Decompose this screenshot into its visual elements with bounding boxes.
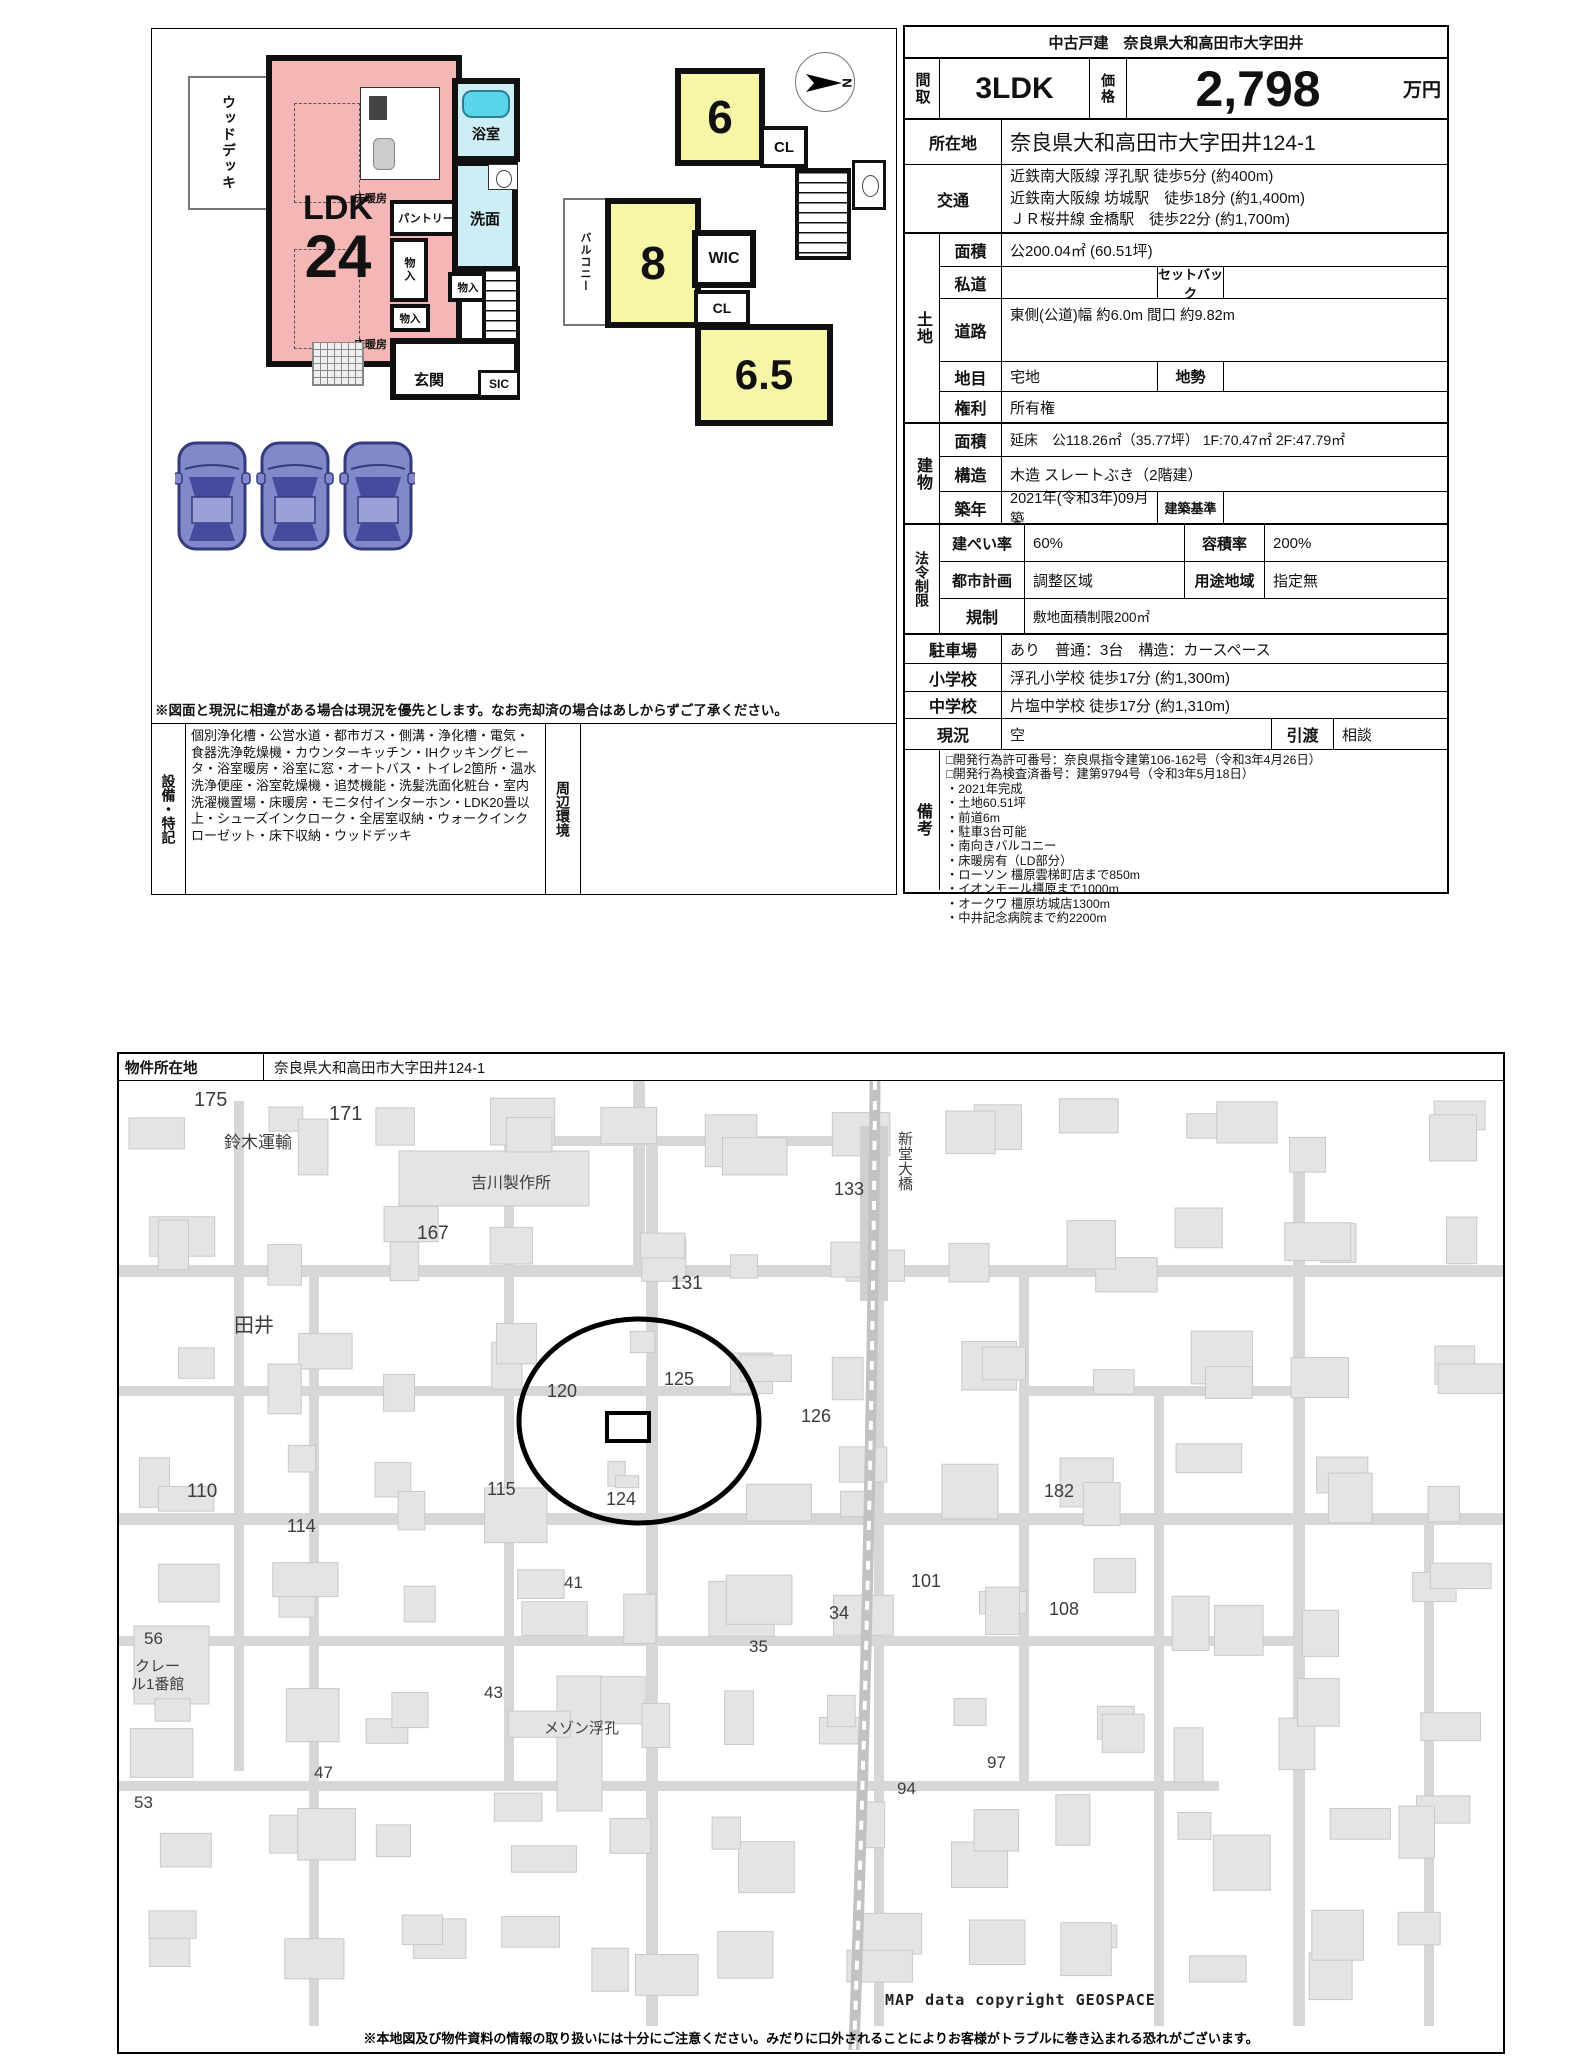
ldk-label: LDK	[278, 191, 398, 225]
equipment-table: 設備・特記 個別浄化槽・公営水道・都市ガス・側溝・浄化槽・電気・食器洗浄乾燥機・…	[151, 723, 897, 895]
madori-value: 3LDK	[940, 59, 1090, 118]
equipment-label: 設備・特記	[152, 724, 186, 894]
elementary-row: 小学校 浮孔小学校 徒歩17分 (約1,300m)	[905, 664, 1447, 692]
room-6-5-label: 6.5	[735, 354, 793, 396]
map-label: 175	[194, 1089, 227, 1112]
room-6-label: 6	[707, 94, 733, 140]
spec-price-row: 間取 3LDK 価格 2,798 万円	[905, 59, 1447, 120]
storage-label-1: 物入	[401, 257, 417, 283]
floor-heating-area-1: 床暖房	[294, 103, 360, 203]
youto-label: 用途地域	[1185, 562, 1265, 598]
land-area-label: 面積	[940, 234, 1002, 266]
map-label: 43	[484, 1683, 503, 1703]
stairs-1f	[482, 266, 520, 346]
status-row: 現況 空 引渡 相談	[905, 719, 1447, 750]
bathtub-icon	[462, 90, 510, 118]
land-area-row: 面積 公200.04㎡ (60.51坪)	[940, 234, 1447, 267]
map-label: 171	[329, 1103, 362, 1126]
map-label: 110	[187, 1481, 217, 1503]
status-label: 現況	[905, 719, 1002, 749]
map-label: ル1番館	[131, 1673, 184, 1694]
toilet-2f	[852, 160, 886, 210]
spec-location-row: 所在地 奈良県大和高田市大字田井124-1	[905, 120, 1447, 165]
rights-label: 権利	[940, 392, 1002, 422]
entrance-porch	[312, 342, 364, 386]
rights-value: 所有権	[1002, 392, 1447, 422]
remarks-lines: □開発行為許可番号：奈良県指令建第106-162号（令和3年4月26日）□開発行…	[940, 750, 1327, 890]
status-value: 空	[1002, 719, 1272, 749]
room-6-5: 6.5	[695, 324, 833, 426]
room-cl-1: CL	[760, 126, 808, 168]
handover-value: 相談	[1334, 719, 1447, 749]
land-group-label: 土地	[905, 234, 940, 424]
surroundings-content	[581, 724, 896, 894]
access-label: 交通	[905, 165, 1002, 232]
setback-value	[1224, 267, 1447, 298]
map-label: 125	[664, 1369, 694, 1390]
private-road-label: 私道	[940, 267, 1002, 298]
remarks-row: □開発行為許可番号：奈良県指令建第106-162号（令和3年4月26日）□開発行…	[940, 750, 1447, 890]
built-value: 2021年(令和3年)09月築	[1002, 492, 1158, 523]
map-label: 97	[987, 1753, 1006, 1773]
map-label: 47	[314, 1763, 333, 1783]
plan-disclaimer: ※図面と現況に相違がある場合は現況を優先とします。なお売却済の場合はあしからずご…	[155, 699, 893, 719]
map-header-label: 物件所在地	[119, 1054, 264, 1080]
chisei-label: 地勢	[1158, 362, 1224, 391]
built-row: 築年 2021年(令和3年)09月築 建築基準	[940, 492, 1447, 525]
map-label: 124	[606, 1489, 636, 1510]
room-sic: SIC	[478, 370, 520, 398]
map-label: 35	[749, 1637, 768, 1657]
cl-label-1: CL	[774, 139, 794, 156]
city-plan-row: 都市計画 調整区域 用途地域 指定無	[940, 562, 1447, 599]
map-canvas: 175171鈴木運輸吉川製作所167133新堂大橋131田井1201251261…	[119, 1081, 1503, 2050]
wic-label: WIC	[708, 250, 739, 268]
map-label: 101	[911, 1571, 941, 1592]
ldk-caption: LDK 24	[278, 191, 398, 287]
map-graphic	[119, 1081, 1503, 2050]
map-label: 126	[801, 1406, 831, 1427]
land-area-value: 公200.04㎡ (60.51坪)	[1002, 234, 1447, 266]
room-balcony: バルコニー	[563, 198, 607, 326]
access-lines: 近鉄南大阪線 浮孔駅 徒歩5分 (約400m)近鉄南大阪線 坊城駅 徒歩18分 …	[1010, 166, 1305, 231]
map-label: 41	[564, 1573, 583, 1593]
map-label: 114	[287, 1516, 316, 1537]
setback-label: セットバック	[1158, 267, 1224, 298]
toilet-1f	[488, 164, 518, 190]
kisei-value: 敷地面積制限200㎡	[1025, 599, 1447, 633]
entrance-label: 玄関	[414, 369, 444, 390]
map-section: 物件所在地 奈良県大和高田市大字田井124-1	[117, 1052, 1505, 2054]
room-8-label: 8	[640, 240, 666, 286]
washroom-label: 洗面	[458, 208, 512, 229]
kisei-label: 規制	[940, 599, 1025, 633]
parking-row: 駐車場 あり 普通：3台 構造：カースペース	[905, 635, 1447, 664]
room-6: 6	[675, 68, 765, 166]
price-value: 2,798	[1127, 59, 1389, 118]
chimoku-value: 宅地	[1002, 362, 1158, 391]
standard-label: 建築基準	[1158, 492, 1224, 523]
structure-label: 構造	[940, 457, 1002, 491]
room-8: 8	[605, 198, 701, 328]
map-label: 53	[134, 1793, 153, 1813]
wood-deck-label: ウッドデッキ	[219, 95, 239, 191]
map-label: 94	[897, 1779, 916, 1799]
bath-label: 浴室	[458, 124, 514, 144]
storage-label-2: 物入	[400, 311, 421, 326]
kitchen-counter	[360, 87, 440, 180]
map-label: 115	[487, 1479, 516, 1500]
spec-title-row: 中古戸建 奈良県大和高田市大字田井	[905, 27, 1447, 59]
built-label: 築年	[940, 492, 1002, 523]
map-label: メゾン浮孔	[544, 1717, 619, 1738]
junior-label: 中学校	[905, 692, 1002, 718]
parking-value: あり 普通：3台 構造：カースペース	[1002, 635, 1447, 663]
map-label: 133	[834, 1179, 864, 1200]
map-copyright: MAP data copyright GEOSPACE	[885, 1991, 1156, 2009]
building-maison-ukiana	[557, 1676, 602, 1811]
standard-value	[1224, 492, 1447, 523]
law-group-label: 法令制限	[905, 525, 940, 635]
property-flyer: ウッドデッキ 床暖房 床暖房 LDK 24 パントリー 物入 物入 浴室 洗面	[0, 0, 1589, 2056]
map-label: 田井	[234, 1309, 274, 1338]
map-label: 新堂大橋	[894, 1131, 915, 1191]
building-area-row: 面積 延床 公118.26㎡（35.77坪） 1F:70.47㎡ 2F:47.7…	[940, 424, 1447, 457]
map-header: 物件所在地 奈良県大和高田市大字田井124-1	[119, 1054, 1503, 1081]
room-wood-deck: ウッドデッキ	[188, 76, 270, 210]
surroundings-label: 周辺環境	[546, 724, 581, 894]
chisei-value	[1224, 362, 1447, 391]
parking-label: 駐車場	[905, 635, 1002, 663]
private-road-row: 私道 セットバック	[940, 267, 1447, 299]
room-wic: WIC	[692, 230, 756, 288]
compass-icon: N	[795, 52, 855, 112]
chimoku-row: 地目 宅地 地勢	[940, 362, 1447, 392]
cl-label-2: CL	[713, 300, 732, 316]
map-label: 34	[829, 1603, 849, 1624]
car-illustrations	[175, 435, 415, 557]
building-area-value: 延床 公118.26㎡（35.77坪） 1F:70.47㎡ 2F:47.79㎡	[1002, 424, 1447, 456]
sic-label: SIC	[489, 377, 509, 391]
equipment-text: 個別浄化槽・公営水道・都市ガス・側溝・浄化槽・電気・食器洗浄乾燥機・カウンターキ…	[186, 724, 546, 894]
spec-access-row: 交通 近鉄南大阪線 浮孔駅 徒歩5分 (約400m)近鉄南大阪線 坊城駅 徒歩1…	[905, 165, 1447, 234]
handover-label: 引渡	[1272, 719, 1334, 749]
map-label: 56	[144, 1629, 163, 1649]
spec-table: 中古戸建 奈良県大和高田市大字田井 間取 3LDK 価格 2,798 万円 所在…	[903, 25, 1449, 894]
city-plan-label: 都市計画	[940, 562, 1025, 598]
yoseki-value: 200%	[1265, 525, 1447, 561]
kenpei-row: 建ぺい率 60% 容積率 200%	[940, 525, 1447, 562]
room-bath: 浴室	[452, 78, 520, 162]
map-label: 鈴木運輸	[224, 1128, 292, 1153]
chimoku-label: 地目	[940, 362, 1002, 391]
road-row: 道路 東側(公道)幅 約6.0m 間口 約9.82m	[940, 299, 1447, 362]
elementary-value: 浮孔小学校 徒歩17分 (約1,300m)	[1002, 664, 1447, 691]
map-header-value: 奈良県大和高田市大字田井124-1	[264, 1054, 1503, 1080]
room-storage-1: 物入	[390, 238, 428, 302]
pantry-label: パントリー	[398, 210, 454, 226]
map-label: 167	[417, 1223, 449, 1245]
road-label: 道路	[940, 299, 1002, 361]
stove-icon	[369, 96, 387, 120]
building-group-label: 建物	[905, 424, 940, 525]
price-unit: 万円	[1389, 59, 1447, 118]
road-value: 東側(公道)幅 約6.0m 間口 約9.82m	[1002, 299, 1447, 361]
stairs-2f	[795, 168, 851, 260]
compass-n-label: N	[840, 78, 855, 87]
elementary-label: 小学校	[905, 664, 1002, 691]
remarks-label: 備考	[905, 750, 940, 890]
building-area-label: 面積	[940, 424, 1002, 456]
kenpei-value: 60%	[1025, 525, 1185, 561]
map-label: 182	[1044, 1481, 1074, 1502]
rights-row: 権利 所有権	[940, 392, 1447, 424]
sink-icon	[373, 138, 395, 170]
location-label: 所在地	[905, 120, 1002, 164]
youto-value: 指定無	[1265, 562, 1447, 598]
kenpei-label: 建ぺい率	[940, 525, 1025, 561]
price-label: 価格	[1098, 73, 1118, 105]
room-cl-2: CL	[694, 290, 750, 326]
map-label: 吉川製作所	[471, 1169, 551, 1193]
subject-property-plot	[607, 1413, 649, 1441]
map-label: 120	[547, 1381, 577, 1402]
map-label: 108	[1049, 1599, 1079, 1620]
map-note: ※本地図及び物件資料の情報の取り扱いには十分にご注意ください。みだりに口外される…	[119, 2028, 1503, 2047]
room-storage-2: 物入	[390, 304, 430, 332]
ldk-size: 24	[278, 227, 398, 287]
junior-row: 中学校 片塩中学校 徒歩17分 (約1,310m)	[905, 692, 1447, 719]
junior-value: 片塩中学校 徒歩17分 (約1,310m)	[1002, 692, 1447, 718]
location-value: 奈良県大和高田市大字田井124-1	[1002, 120, 1447, 164]
city-plan-value: 調整区域	[1025, 562, 1185, 598]
yoseki-label: 容積率	[1185, 525, 1265, 561]
madori-label: 間取	[912, 72, 933, 106]
spec-title: 中古戸建 奈良県大和高田市大字田井	[1048, 32, 1303, 53]
map-label: 131	[671, 1273, 703, 1295]
storage-label-3: 物入	[458, 280, 479, 295]
balcony-label: バルコニー	[577, 232, 593, 292]
private-road-value	[1002, 267, 1158, 298]
kisei-row: 規制 敷地面積制限200㎡	[940, 599, 1447, 635]
